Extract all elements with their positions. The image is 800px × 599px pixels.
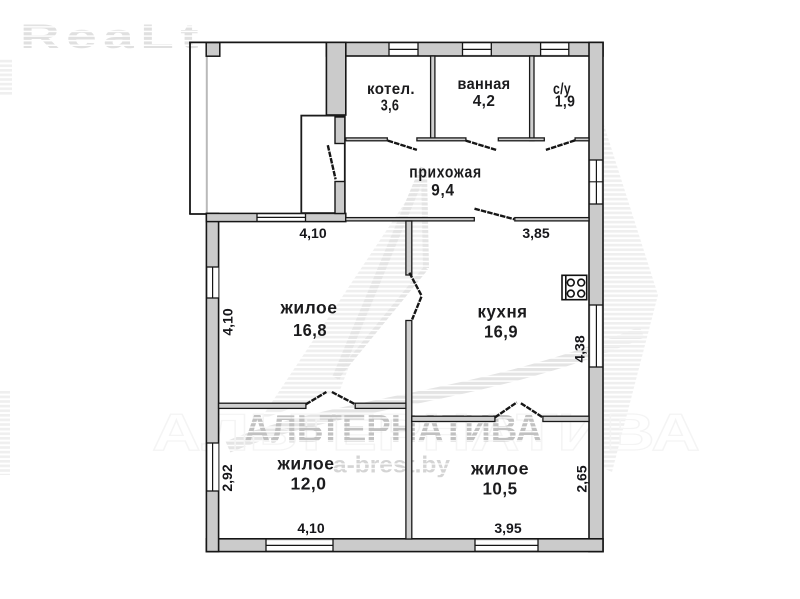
svg-text:3,6: 3,6 — [381, 98, 400, 115]
svg-text:3,85: 3,85 — [522, 225, 549, 241]
svg-text:1,9: 1,9 — [555, 94, 576, 111]
svg-text:4,10: 4,10 — [299, 225, 326, 241]
svg-text:16,9: 16,9 — [484, 321, 518, 341]
svg-text:кухня: кухня — [478, 302, 528, 322]
svg-text:4,2: 4,2 — [473, 93, 496, 110]
svg-text:4,38: 4,38 — [572, 335, 588, 362]
svg-text:3,95: 3,95 — [494, 520, 521, 536]
svg-text:ReaLt: ReaLt — [20, 18, 205, 56]
svg-text:ванная: ванная — [458, 76, 511, 93]
svg-text:жилое: жилое — [279, 298, 337, 318]
svg-text:жилое: жилое — [276, 454, 334, 474]
svg-text:2,65: 2,65 — [574, 465, 590, 492]
svg-text:12,0: 12,0 — [291, 474, 327, 494]
svg-text:2,92: 2,92 — [219, 464, 235, 491]
svg-text:16,8: 16,8 — [293, 320, 327, 340]
svg-text:4,10: 4,10 — [297, 520, 324, 536]
svg-text:9,4: 9,4 — [431, 182, 455, 200]
svg-text:4,10: 4,10 — [220, 308, 236, 335]
svg-text:10,5: 10,5 — [483, 479, 518, 499]
svg-text:котел.: котел. — [367, 81, 415, 98]
svg-text:жилое: жилое — [470, 459, 529, 479]
svg-text:а-brest.by: а-brest.by — [333, 452, 450, 478]
svg-text:прихожая: прихожая — [409, 164, 482, 182]
